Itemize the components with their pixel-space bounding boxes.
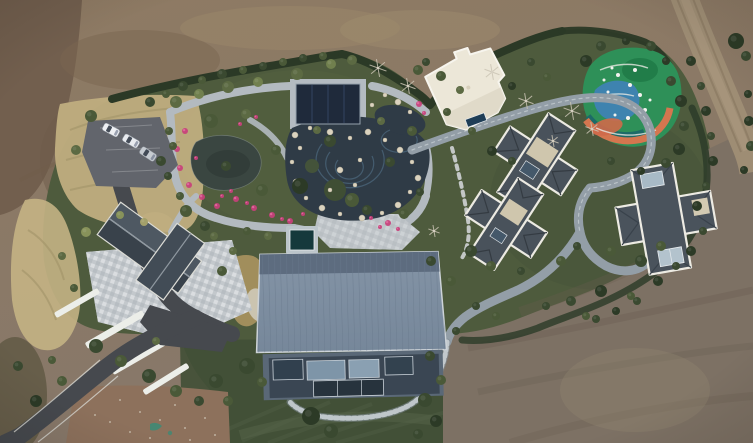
aerial-estate-photo <box>0 0 753 443</box>
photo-vignette <box>0 0 753 443</box>
aerial-photo-stage <box>0 0 753 443</box>
